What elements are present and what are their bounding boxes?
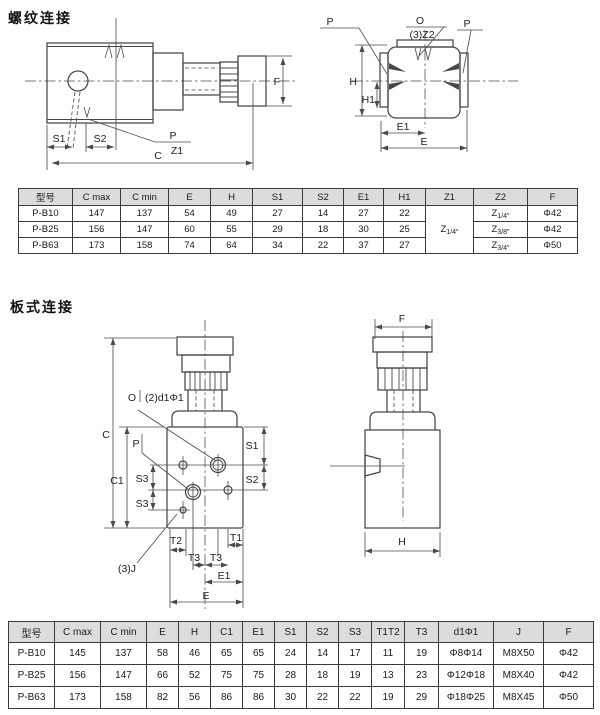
- cell: 25: [384, 222, 426, 238]
- col-header: H1: [384, 189, 426, 206]
- z1-merged-cell: Z1/4″: [426, 206, 474, 254]
- col-header: S3: [339, 622, 372, 643]
- cell: 54: [169, 206, 211, 222]
- cell: Φ42: [544, 665, 594, 687]
- cell: 137: [101, 643, 147, 665]
- cell: 46: [179, 643, 211, 665]
- cell: 145: [55, 643, 101, 665]
- dim-label-f: F: [274, 76, 280, 88]
- cell: 52: [179, 665, 211, 687]
- cell: 74: [169, 238, 211, 254]
- col-header: H: [179, 622, 211, 643]
- col-header: S1: [253, 189, 303, 206]
- dim-label-t1: T1: [230, 532, 242, 544]
- cell: 156: [73, 222, 121, 238]
- cell: 27: [253, 206, 303, 222]
- col-header: 型号: [9, 622, 55, 643]
- cell: 19: [405, 643, 439, 665]
- cell: 19: [372, 687, 405, 709]
- z2-cell: Z3/8″: [474, 222, 528, 238]
- port-label-o: O: [416, 15, 424, 27]
- cell: 82: [147, 687, 179, 709]
- cell: 11: [372, 643, 405, 665]
- cell: 158: [121, 238, 169, 254]
- dim-label-h: H: [398, 536, 406, 548]
- z2-cell: Z3/4″: [474, 238, 528, 254]
- cell: 37: [344, 238, 384, 254]
- col-header: E1: [344, 189, 384, 206]
- table-row: P-B63 173 158 74 64 34 22 37 27 Z3/4″ Φ5…: [19, 238, 578, 254]
- dim-label-c: C: [154, 150, 162, 162]
- cell: P-B63: [9, 687, 55, 709]
- col-header: C1: [211, 622, 243, 643]
- dim-label-c1: C1: [110, 475, 124, 487]
- cell: 56: [179, 687, 211, 709]
- dim-label-c: C: [102, 429, 110, 441]
- col-header: C min: [121, 189, 169, 206]
- cell: Φ12Φ18: [439, 665, 494, 687]
- cell: 22: [303, 238, 344, 254]
- cell: Φ42: [528, 206, 578, 222]
- col-header: S2: [303, 189, 344, 206]
- cell: 66: [147, 665, 179, 687]
- cell: 137: [121, 206, 169, 222]
- dim-label-t3-left: T3: [188, 552, 200, 564]
- dim-label-e1: E1: [397, 121, 410, 133]
- port-label-p-right: P: [463, 18, 470, 30]
- dim-label-h1: H1: [362, 94, 376, 106]
- cell: Φ8Φ14: [439, 643, 494, 665]
- col-header: S2: [307, 622, 339, 643]
- dim-label-f: F: [399, 313, 405, 325]
- cell: 75: [211, 665, 243, 687]
- dim-label-s2: S2: [246, 474, 259, 486]
- port-label-p: P: [169, 130, 176, 142]
- col-header: H: [211, 189, 253, 206]
- port-label-p: P: [132, 438, 139, 450]
- cell: 18: [303, 222, 344, 238]
- cell: 13: [372, 665, 405, 687]
- cell: 86: [243, 687, 275, 709]
- cell: Φ50: [544, 687, 594, 709]
- col-header: Z2: [474, 189, 528, 206]
- table-row: P-B10 147 137 54 49 27 14 27 22 Z1/4″ Z1…: [19, 206, 578, 222]
- cell: 55: [211, 222, 253, 238]
- cell: 23: [405, 665, 439, 687]
- dim-label-s2: S2: [94, 133, 107, 145]
- cell: 22: [339, 687, 372, 709]
- cell: 27: [344, 206, 384, 222]
- table-row: P-B63 173 158 82 56 86 86 30 22 22 19 29…: [9, 687, 594, 709]
- thread-label-z1: Z1: [171, 145, 183, 157]
- cell: 75: [243, 665, 275, 687]
- cell: 27: [384, 238, 426, 254]
- dim-label-e: E: [420, 136, 427, 148]
- cell: Φ42: [528, 222, 578, 238]
- plate-side-view-drawing: F H: [320, 315, 460, 615]
- cell: 30: [275, 687, 307, 709]
- cell: 18: [307, 665, 339, 687]
- plate-front-view-drawing: O (2)d1Φ1 C C1 P S1 S2 S3 S3 T2 T1 T3 T3…: [95, 315, 290, 615]
- mounting-hole-note: (2)d1Φ1: [145, 392, 184, 404]
- cell: 24: [275, 643, 307, 665]
- cell: 173: [55, 687, 101, 709]
- cell: 158: [101, 687, 147, 709]
- knob-cap: [373, 337, 432, 352]
- col-header: J: [494, 622, 544, 643]
- dim-label-s1: S1: [246, 440, 259, 452]
- z2-cell: Z1/4″: [474, 206, 528, 222]
- cell: 14: [303, 206, 344, 222]
- cell: M8X50: [494, 643, 544, 665]
- stud-note-j: (3)J: [118, 563, 136, 575]
- dim-label-e1: E1: [218, 570, 231, 582]
- thread-note-z2: (3)Z2: [409, 29, 434, 41]
- cell: 29: [253, 222, 303, 238]
- valve-body: [365, 430, 440, 528]
- dim-label-s3-upper: S3: [136, 473, 149, 485]
- cell: 86: [211, 687, 243, 709]
- dim-label-h: H: [349, 76, 357, 88]
- cell: 22: [307, 687, 339, 709]
- dim-label-s3-lower: S3: [136, 498, 149, 510]
- cell: 60: [169, 222, 211, 238]
- table-row: P-B10 145 137 58 46 65 65 24 14 17 11 19…: [9, 643, 594, 665]
- threaded-end-view-drawing: P O (3)Z2 P H H1 E1 E: [300, 8, 580, 178]
- col-header: Z1: [426, 189, 474, 206]
- cell: 29: [405, 687, 439, 709]
- col-header: d1Φ1: [439, 622, 494, 643]
- side-port-right: [460, 53, 468, 107]
- cell: 19: [339, 665, 372, 687]
- thread-mark: [84, 107, 90, 117]
- cell: 147: [73, 206, 121, 222]
- cell: 65: [243, 643, 275, 665]
- cell: P-B25: [9, 665, 55, 687]
- col-header: T1T2: [372, 622, 405, 643]
- col-header: E: [169, 189, 211, 206]
- cell: P-B10: [19, 206, 73, 222]
- dim-label-e: E: [202, 590, 209, 602]
- port-label-o: O: [128, 392, 136, 404]
- side-port: [365, 455, 380, 476]
- cell: 28: [275, 665, 307, 687]
- col-header: C max: [55, 622, 101, 643]
- cell: Φ50: [528, 238, 578, 254]
- col-header: F: [528, 189, 578, 206]
- catalog-page: 螺纹连接 板式连接: [0, 0, 600, 715]
- side-port-left: [380, 53, 388, 107]
- col-header: E1: [243, 622, 275, 643]
- cell: 147: [121, 222, 169, 238]
- col-header: S1: [275, 622, 307, 643]
- dim-label-t2: T2: [170, 535, 182, 547]
- cell: P-B63: [19, 238, 73, 254]
- col-header: 型号: [19, 189, 73, 206]
- cell: M8X40: [494, 665, 544, 687]
- cell: Φ42: [544, 643, 594, 665]
- cell: P-B10: [9, 643, 55, 665]
- cell: 58: [147, 643, 179, 665]
- cell: 14: [307, 643, 339, 665]
- cell: 22: [384, 206, 426, 222]
- cell: 65: [211, 643, 243, 665]
- plate-dimensions-table: 型号 C max C min E H C1 E1 S1 S2 S3 T1T2 T…: [8, 621, 594, 709]
- thread-mark: [425, 48, 431, 60]
- threaded-dimensions-table: 型号 C max C min E H S1 S2 E1 H1 Z1 Z2 F P…: [18, 188, 578, 254]
- col-header: E: [147, 622, 179, 643]
- cell: 156: [55, 665, 101, 687]
- cell: 34: [253, 238, 303, 254]
- cell: 173: [73, 238, 121, 254]
- cell: 64: [211, 238, 253, 254]
- col-header: C max: [73, 189, 121, 206]
- cell: M8X45: [494, 687, 544, 709]
- threaded-side-view-drawing: S1 S2 P Z1 C F: [20, 8, 300, 178]
- thread-mark: [415, 48, 421, 60]
- dim-label-t3-right: T3: [210, 552, 222, 564]
- cell: P-B25: [19, 222, 73, 238]
- table-row: P-B25 156 147 66 52 75 75 28 18 19 13 23…: [9, 665, 594, 687]
- cell: Φ18Φ25: [439, 687, 494, 709]
- dim-label-s1: S1: [53, 133, 66, 145]
- port-label-p-left: P: [326, 16, 333, 28]
- cell: 17: [339, 643, 372, 665]
- table-header-row: 型号 C max C min E H C1 E1 S1 S2 S3 T1T2 T…: [9, 622, 594, 643]
- table-row: P-B25 156 147 60 55 29 18 30 25 Z3/8″ Φ4…: [19, 222, 578, 238]
- col-header: C min: [101, 622, 147, 643]
- col-header: T3: [405, 622, 439, 643]
- cell: 30: [344, 222, 384, 238]
- col-header: F: [544, 622, 594, 643]
- plate-section-title: 板式连接: [10, 297, 74, 317]
- cell: 147: [101, 665, 147, 687]
- table-header-row: 型号 C max C min E H S1 S2 E1 H1 Z1 Z2 F: [19, 189, 578, 206]
- cell: 49: [211, 206, 253, 222]
